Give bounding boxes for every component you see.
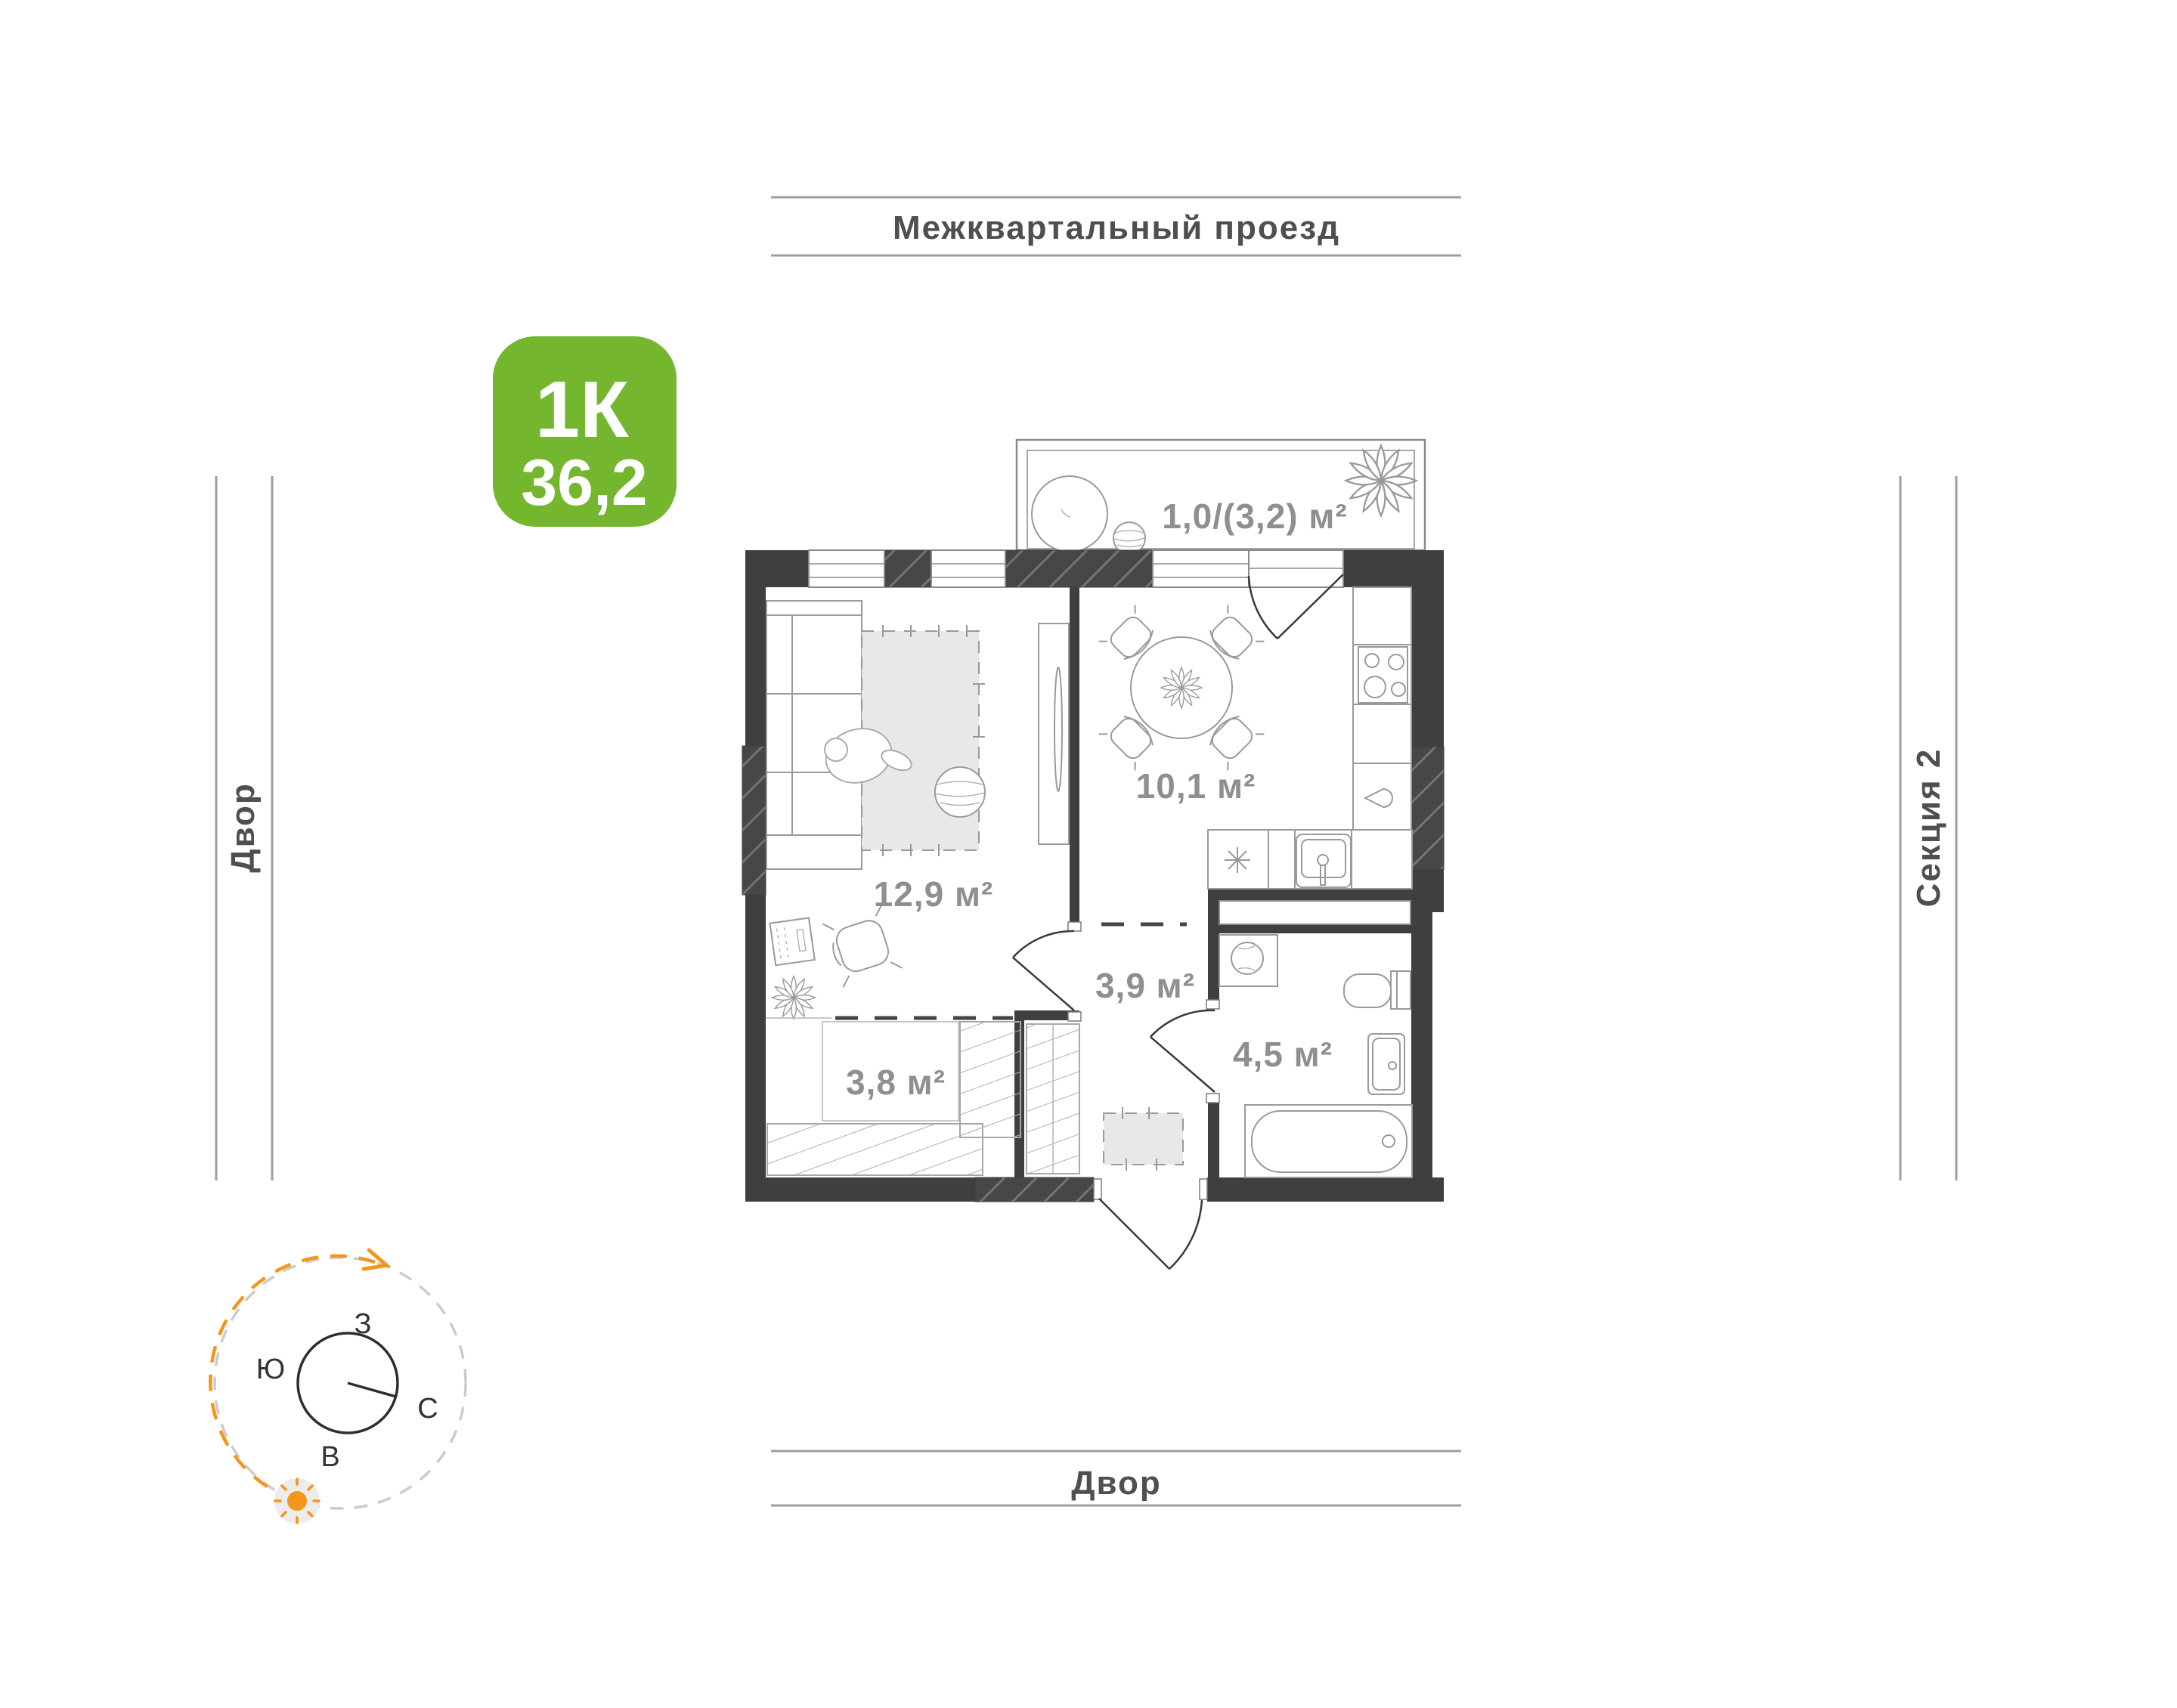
kitchen: 10,1 м²: [1099, 587, 1412, 889]
washing-machine: [1219, 935, 1277, 986]
floorplan-page: Межквартальный проезд Двор Двор Секция 2…: [0, 0, 2177, 1708]
badge-type-label: 1К: [535, 365, 629, 454]
tv-unit: [1039, 623, 1069, 844]
yard-left-label: Двор: [225, 782, 262, 873]
entry-rug: [1104, 1107, 1183, 1171]
kitchen-sink: [1296, 834, 1351, 887]
entry-door: [1094, 1179, 1207, 1269]
compass-west-label: З: [355, 1308, 372, 1340]
window-kitchen: [1153, 550, 1249, 587]
street-top-label: Межквартальный проезд: [893, 209, 1340, 246]
section-right-label: Секция 2: [1910, 748, 1947, 908]
wardrobe-area-label: 3,8 м²: [846, 1063, 946, 1102]
window-living-1: [809, 550, 884, 587]
window-living-2: [931, 550, 1005, 587]
bathroom: 4,5 м²: [1219, 935, 1412, 1177]
bathroom-area-label: 4,5 м²: [1233, 1035, 1333, 1074]
hall-wardrobe: [1027, 1024, 1079, 1174]
kitchen-counter-right: [1353, 587, 1411, 830]
balcony-area-label: 1,0/(3,2) м²: [1162, 497, 1347, 536]
compass-north-label: С: [417, 1393, 438, 1425]
living-room-door: [1013, 922, 1081, 1021]
yard-guide-left: Двор: [216, 476, 272, 1180]
balcony-door-opening: [1249, 550, 1343, 587]
stove: [1358, 647, 1407, 703]
apartment-badge: 1К 36,2: [493, 336, 677, 527]
vent-shaft: [1219, 901, 1411, 924]
office-chair: [822, 905, 902, 987]
living-room: 12,9 м²: [766, 601, 1069, 1020]
living-plant-icon: [773, 976, 816, 1020]
balcony-table: [1032, 476, 1107, 552]
section-guide-right: Секция 2: [1900, 476, 1956, 1180]
street-guide-top: Межквартальный проезд: [771, 197, 1461, 255]
bathroom-sink: [1368, 1034, 1404, 1094]
balcony: 1,0/(3,2) м²: [1017, 440, 1425, 554]
bathtub: [1245, 1105, 1412, 1177]
compass-arrow-icon: [364, 1250, 389, 1275]
compass-east-label: В: [321, 1441, 339, 1473]
toilet: [1344, 971, 1411, 1009]
yard-bottom-label: Двор: [1071, 1465, 1162, 1502]
dining-table: [1131, 637, 1232, 738]
wardrobe-room: 3,8 м²: [766, 1018, 1020, 1175]
fridge-icon: [1225, 847, 1250, 873]
hallway-area-label: 3,9 м²: [1095, 966, 1195, 1005]
desk: [770, 918, 814, 966]
yard-guide-bottom: Двор: [771, 1451, 1461, 1505]
bathroom-door: [1150, 1000, 1219, 1103]
balcony-stool: [1113, 522, 1145, 554]
pouf: [935, 767, 985, 817]
badge-area-value: 36,2: [521, 447, 647, 519]
kitchen-area-label: 10,1 м²: [1136, 766, 1256, 806]
compass: З Ю С В: [210, 1250, 466, 1524]
sun-icon: [274, 1478, 320, 1524]
compass-south-label: Ю: [256, 1354, 285, 1385]
living-area-label: 12,9 м²: [874, 874, 994, 914]
hallway: 3,9 м²: [1027, 966, 1195, 1174]
